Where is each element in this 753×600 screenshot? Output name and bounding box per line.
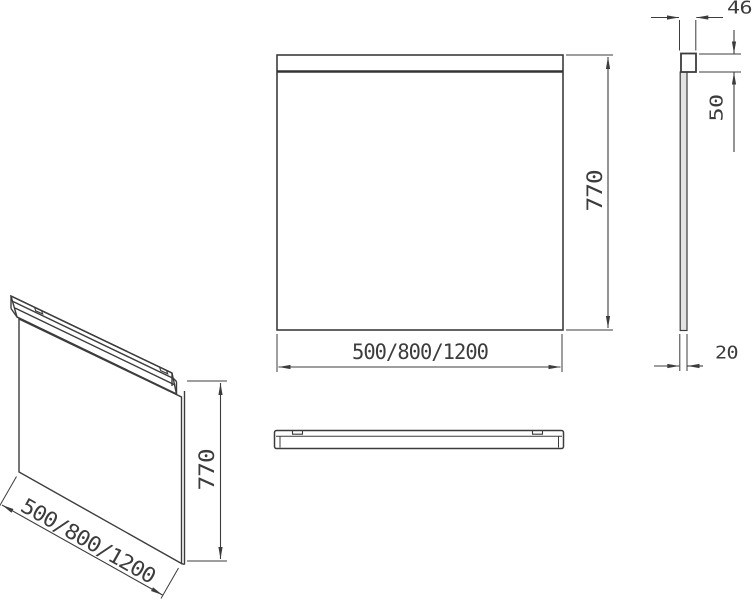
side-depth-label: 46 [727, 0, 752, 19]
iso-panel-bottom-edge [182, 564, 185, 565]
front-height-dimension: 770 [566, 55, 613, 330]
iso-height-dimension: 770 [187, 381, 227, 561]
side-thickness-dimension: 20 [654, 334, 738, 371]
front-width-label: 500/800/1200 [352, 340, 488, 364]
front-view: 770 500/800/1200 [277, 55, 613, 372]
side-view: 46 50 20 [651, 0, 752, 371]
side-rail-height-dimension: 50 [699, 30, 741, 152]
drawing-svg: 770 500/800/1200 46 50 [0, 0, 753, 600]
side-thickness-label: 20 [715, 343, 738, 364]
iso-height-label: 770 [195, 449, 219, 490]
front-height-label: 770 [583, 170, 607, 211]
front-panel-outline [277, 55, 563, 330]
iso-view: 770 500/800/1200 [0, 296, 227, 599]
technical-drawing-sheet: 770 500/800/1200 46 50 [0, 0, 753, 600]
side-depth-dimension: 46 [651, 0, 752, 51]
side-panel-strip [680, 72, 687, 331]
side-rail-bracket [681, 54, 696, 73]
front-width-dimension: 500/800/1200 [277, 334, 562, 372]
top-view [275, 431, 564, 449]
side-rail-height-label: 50 [707, 95, 728, 122]
top-view-outline [275, 431, 564, 449]
